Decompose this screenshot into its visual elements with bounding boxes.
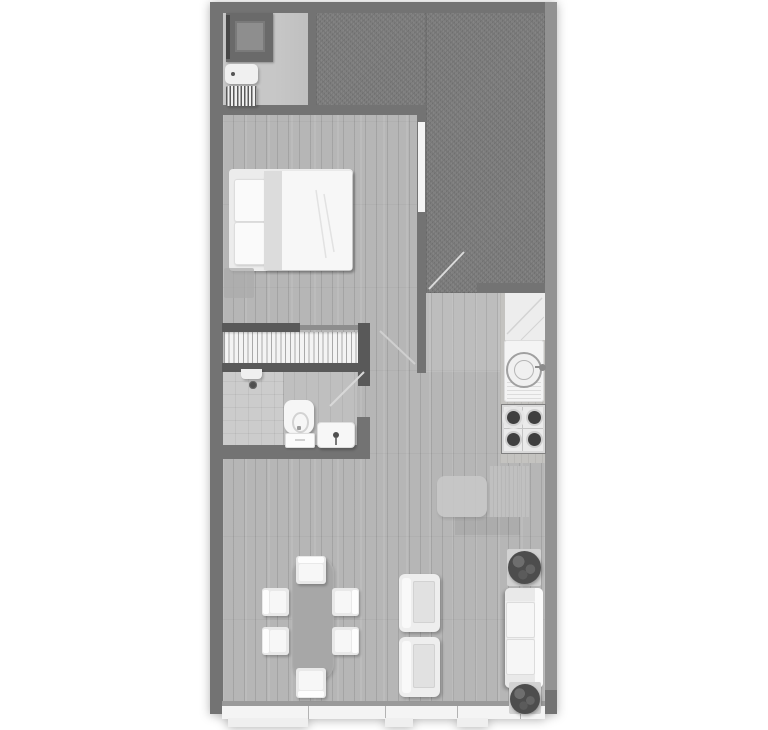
toilet-flush-mark [297, 426, 301, 430]
stair-treads [224, 332, 370, 363]
shower-drain [249, 381, 257, 389]
sofa-cushion [506, 602, 535, 638]
stair-newel-post [358, 323, 370, 386]
dining-chair [332, 588, 359, 616]
sofa-backrest [535, 588, 543, 688]
window-sill [385, 718, 413, 727]
rug [489, 466, 530, 517]
hob-grid-line [522, 407, 523, 451]
wall-terrace-south [477, 283, 545, 293]
boiler [225, 64, 258, 84]
sofa-cushion [506, 639, 535, 675]
dining-chair [262, 588, 289, 616]
canvas: { "image": { "kind": "architectural-floo… [0, 0, 768, 730]
wall-corner-southeast [545, 690, 557, 714]
stair-handrail-top-thin [300, 325, 362, 330]
plant [508, 551, 541, 584]
bedside-bench [224, 268, 254, 298]
sofa [505, 588, 543, 688]
bedroom-window [418, 122, 425, 212]
plant [510, 684, 540, 714]
wall-utility-divider [308, 12, 316, 107]
hallway-floor-highlight [426, 293, 510, 372]
gas-hob [501, 404, 546, 454]
hob-grid-line [504, 428, 543, 429]
washbasin [317, 422, 355, 448]
cistern-dash [295, 439, 305, 441]
sink-basin-inner [514, 360, 534, 380]
window-sill [228, 718, 308, 727]
sofa-armrest [505, 588, 535, 601]
terrace-floor-right [426, 12, 545, 293]
burner [507, 411, 520, 424]
desk-shadow [455, 517, 520, 535]
dining-chair [262, 627, 289, 655]
pillow [234, 179, 266, 222]
toilet-bowl [284, 400, 314, 434]
wall-north [210, 2, 557, 13]
burner [528, 411, 541, 424]
duvet-fold [264, 171, 282, 270]
burner [528, 433, 541, 446]
shower-head [241, 369, 262, 379]
stair-handrail-top [222, 323, 300, 332]
desk [437, 476, 487, 517]
armchair [399, 637, 440, 697]
wall-east [545, 2, 557, 714]
terrace-floor-top [316, 12, 426, 107]
armchair [399, 574, 440, 632]
window-mullion [308, 706, 309, 719]
dining-chair [296, 556, 326, 584]
boiler-knob [231, 72, 235, 76]
kitchen-sink-unit [504, 340, 544, 402]
dining-chair [296, 668, 326, 698]
dining-chair [332, 627, 359, 655]
sink-faucet [539, 364, 546, 371]
vent-unit [226, 86, 257, 106]
washing-machine-door-strip [226, 15, 230, 59]
kitchen-worktop [505, 293, 545, 340]
wall-bedroom-north [222, 105, 426, 115]
washing-machine-drum [235, 21, 265, 52]
basin-faucet-stem [335, 438, 337, 445]
window-sill [457, 718, 488, 727]
burner [507, 433, 520, 446]
floor-plan [210, 2, 557, 728]
pillow [234, 222, 266, 265]
toilet-cistern [285, 433, 315, 448]
